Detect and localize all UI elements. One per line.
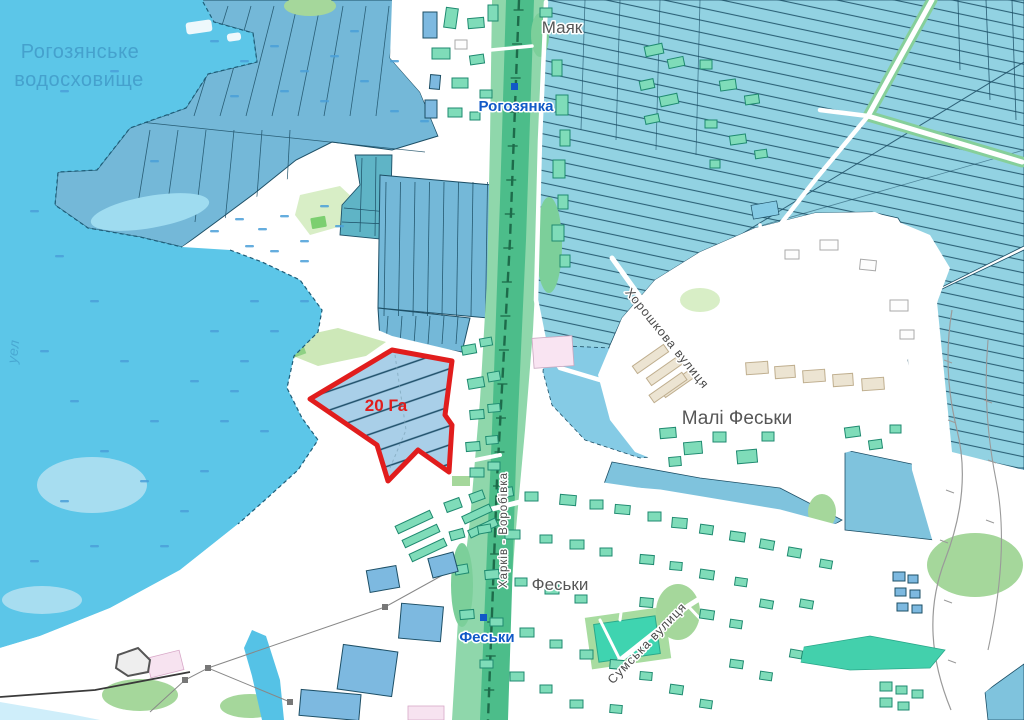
reservoir-label-line2: водосховище [14, 69, 143, 91]
pink-parcel [532, 336, 574, 369]
reservoir-label-line1: Рогозянське [21, 41, 139, 63]
station-marker [511, 83, 518, 90]
station-label-rohozianka: Рогозянка [479, 98, 555, 115]
village-label-mali-fesky: Малі Феськи [682, 408, 793, 429]
station-marker [480, 614, 487, 621]
map-viewport[interactable]: Рогозянське водосховище уел Маяк Рогозян… [0, 0, 1024, 720]
map-canvas[interactable]: Рогозянське водосховище уел Маяк Рогозян… [0, 0, 1024, 720]
parcel-area-label: 20 Га [365, 396, 408, 415]
water-label-fragment: уел [4, 339, 22, 365]
vegetation-patch [452, 476, 470, 486]
station-label-fesky: Феськи [459, 629, 514, 646]
railway-line-label: Харків - Воробівка [498, 472, 510, 588]
village-label-mayak: Маяк [542, 18, 583, 37]
village-label-fesky: Феськи [532, 575, 589, 594]
